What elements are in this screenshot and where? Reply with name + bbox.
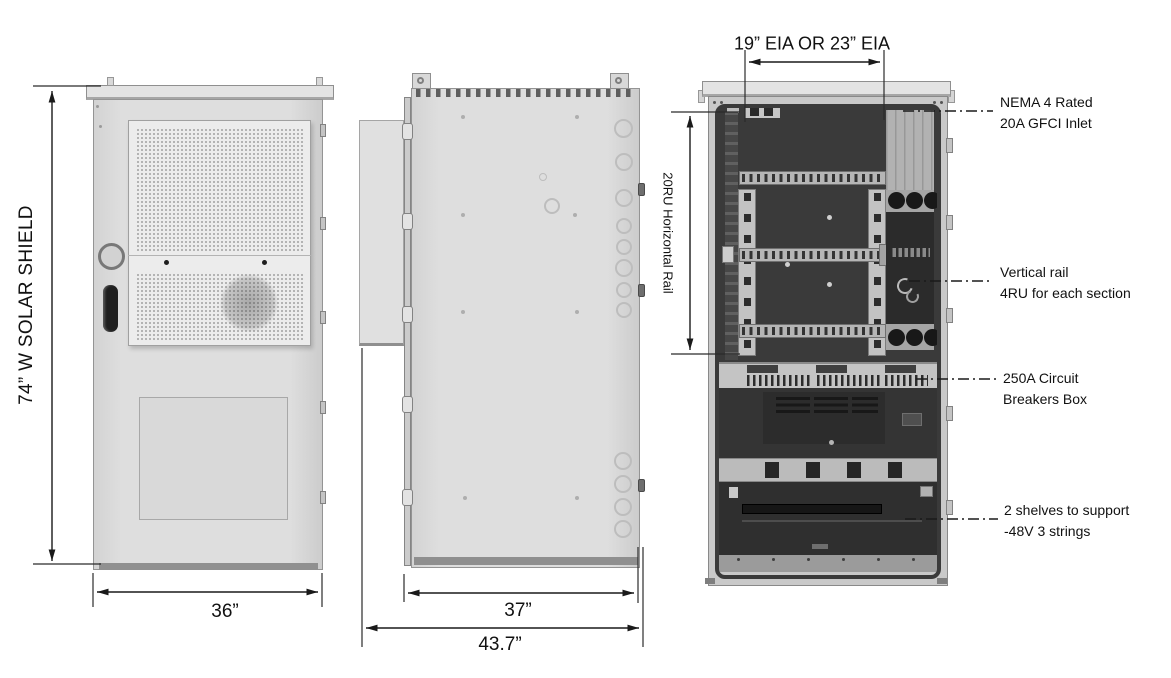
knockout-circle [614, 452, 632, 470]
knockout-circle [615, 189, 633, 207]
side-total-depth-label: 43.7” [478, 634, 521, 656]
upper-vent-perforation [136, 128, 303, 251]
front-height-label: 74” W SOLAR SHIELD [16, 205, 38, 405]
hinge [402, 306, 413, 323]
screw [96, 105, 99, 108]
hinge [402, 489, 413, 506]
knockout-circle [615, 259, 633, 277]
door-handle [103, 285, 118, 332]
foot-mark [937, 578, 947, 584]
side-bottom-sill [414, 557, 638, 565]
front-width-label: 36” [211, 601, 238, 623]
side-bolt [638, 479, 645, 492]
vent-divider [128, 255, 311, 256]
foot-mark [705, 578, 715, 584]
hinge [946, 138, 953, 153]
annotation-line: 250A Circuit [1003, 368, 1087, 389]
screw [940, 101, 943, 104]
rack-width-label: 19” EIA OR 23” EIA [734, 34, 890, 55]
hinge [320, 491, 326, 504]
front-bottom-sill [99, 563, 318, 570]
cabinet-technical-drawing: 74” W SOLAR SHIELD 36” 37” 43.7” 19” EIA… [0, 0, 1171, 678]
knockout-circle [616, 282, 632, 298]
annotation-line: Breakers Box [1003, 389, 1087, 410]
front-roof-cap [86, 85, 334, 100]
front-roof-tab [107, 77, 114, 86]
front-access-panel-outline [139, 397, 288, 520]
hinge [946, 500, 953, 515]
annotation-gfci-inlet: NEMA 4 Rated 20A GFCI Inlet [1000, 92, 1093, 134]
screw [573, 213, 577, 217]
side-view-body [411, 88, 640, 568]
knockout-circle [544, 198, 560, 214]
hinge [402, 123, 413, 140]
door-lock [98, 243, 125, 270]
solar-shield-side-panel [359, 120, 404, 346]
knockout-circle [616, 218, 632, 234]
side-bolt [638, 183, 645, 196]
screw [575, 496, 579, 500]
screw [463, 496, 467, 500]
knockout-circle [614, 498, 632, 516]
bracket-hole [417, 77, 424, 84]
screw [461, 213, 465, 217]
knockout-circle [616, 239, 632, 255]
knockout-circle [539, 173, 547, 181]
screw [461, 310, 465, 314]
screw [262, 260, 267, 265]
bracket-hole [615, 77, 622, 84]
annotation-line: -48V 3 strings [1004, 521, 1129, 542]
annotation-line: Vertical rail [1000, 262, 1131, 283]
hinge [946, 215, 953, 230]
top-vent-slots [416, 89, 635, 97]
knockout-circle [616, 302, 632, 318]
hinge [946, 406, 953, 421]
annotation-vertical-rail: Vertical rail 4RU for each section [1000, 262, 1131, 304]
side-depth-label: 37” [504, 600, 531, 622]
fan-circle [220, 274, 278, 332]
hinge [320, 217, 326, 230]
hinge [402, 213, 413, 230]
annotation-line: 20A GFCI Inlet [1000, 113, 1093, 134]
screw [713, 101, 716, 104]
door-seal-ring [715, 104, 941, 579]
knockout-circle [614, 475, 632, 493]
interior-roof-cap [702, 81, 951, 97]
knockout-circle [615, 153, 633, 171]
hinge [946, 308, 953, 323]
annotation-line: NEMA 4 Rated [1000, 92, 1093, 113]
hinge [320, 311, 326, 324]
hinge [402, 396, 413, 413]
rack-rail-label: 20RU Horizontal Rail [661, 172, 676, 293]
hinge [320, 401, 326, 414]
screw [575, 310, 579, 314]
annotation-line: 4RU for each section [1000, 283, 1131, 304]
screw [575, 115, 579, 119]
knockout-circle [614, 520, 632, 538]
hinge [320, 124, 326, 137]
side-bolt [638, 284, 645, 297]
annotation-breaker-box: 250A Circuit Breakers Box [1003, 368, 1087, 410]
annotation-battery-shelves: 2 shelves to support -48V 3 strings [1004, 500, 1129, 542]
front-roof-tab [316, 77, 323, 86]
screw [461, 115, 465, 119]
screw [99, 125, 102, 128]
annotation-line: 2 shelves to support [1004, 500, 1129, 521]
knockout-circle [614, 119, 633, 138]
screw [164, 260, 169, 265]
